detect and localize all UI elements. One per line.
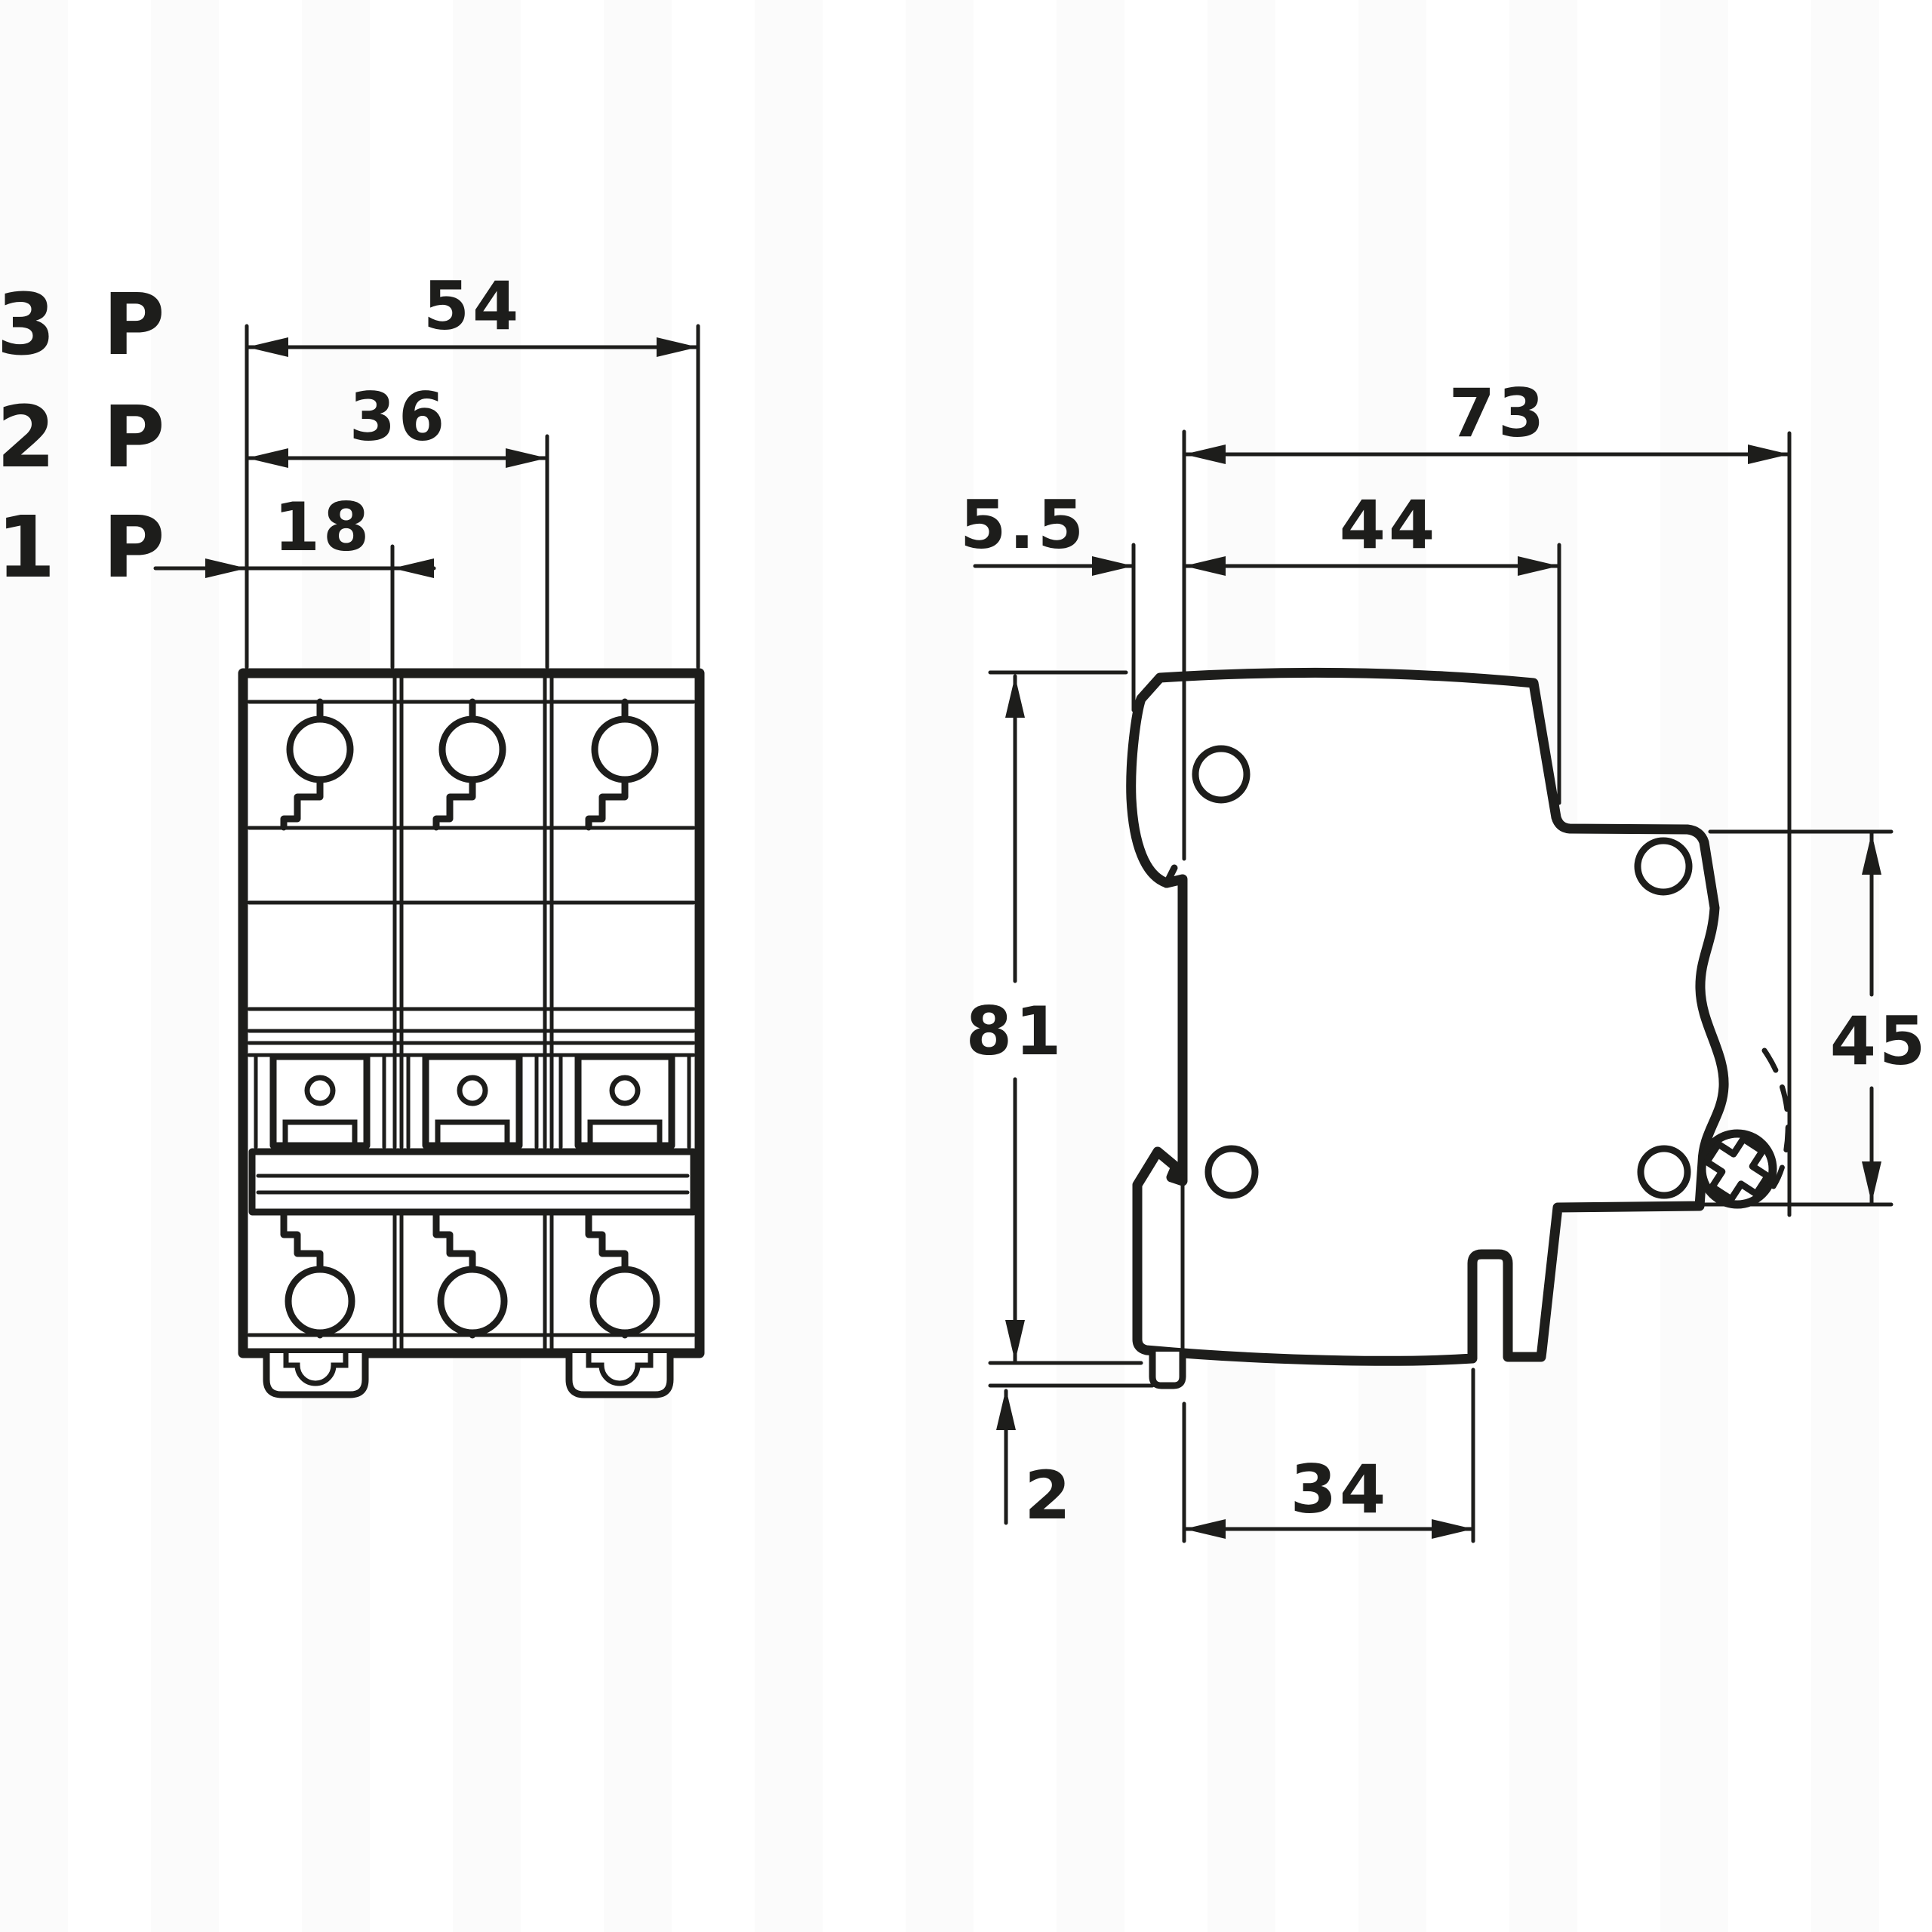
arrow-left [1184, 1519, 1226, 1539]
housing-rivet-top-front [1638, 841, 1689, 892]
label-3p: 3 P [0, 276, 174, 374]
dim-45: 45 [1830, 833, 1928, 1203]
arrow-right [1518, 556, 1559, 576]
technical-drawing: 54 36 18 3 P 2 P 1 P 73 [0, 0, 1932, 1932]
label-1p: 1 P [0, 499, 174, 597]
dim-34-label: 34 [1291, 1451, 1389, 1528]
dim-45-label: 45 [1830, 1002, 1928, 1080]
dim-44: 44 [1184, 486, 1559, 576]
dim-18-label: 18 [274, 488, 372, 566]
housing-rivet-bottom-front [1641, 1149, 1687, 1195]
arrow-down [1862, 1161, 1881, 1203]
pole-count-labels: 3 P 2 P 1 P [0, 276, 174, 597]
arrow-up-outside [996, 1389, 1016, 1430]
top-terminal-screw [290, 719, 350, 780]
bottom-terminal-screw [288, 1269, 352, 1333]
clip-outline [569, 1353, 670, 1395]
clip-foot [1152, 1352, 1183, 1386]
dim-2-label: 2 [1024, 1457, 1073, 1534]
bottom-terminal-screw [593, 1269, 657, 1333]
dim-2: 2 [996, 1389, 1074, 1534]
arrow-up [1862, 833, 1881, 875]
dim-36-label: 36 [349, 378, 448, 456]
dim-54-label: 54 [423, 267, 521, 345]
arrow-right-outside [392, 558, 434, 578]
arrow-left [247, 448, 288, 468]
bottom-terminal-screw [441, 1269, 504, 1333]
arrow-up [1005, 676, 1025, 718]
arrow-left [1184, 445, 1226, 464]
dim-73-label: 73 [1449, 374, 1547, 452]
clip-outline [266, 1353, 365, 1395]
dim-5-5-label: 5.5 [960, 486, 1087, 564]
dim-44-label: 44 [1340, 486, 1438, 564]
arrow-down [1005, 1320, 1025, 1361]
arrow-right-outside [1092, 556, 1134, 576]
arrow-left-outside [205, 558, 247, 578]
dim-5-5: 5.5 [960, 486, 1134, 576]
arrow-right [1748, 445, 1789, 464]
front-dimensions: 54 36 18 3 P 2 P 1 P [0, 267, 698, 667]
dim-36: 36 [247, 378, 547, 468]
arrow-left [1184, 556, 1226, 576]
drawing-canvas: 54 36 18 3 P 2 P 1 P 73 [0, 0, 1932, 1932]
dim-34: 34 [1184, 1451, 1473, 1539]
arrow-right [1432, 1519, 1473, 1539]
dim-73: 73 [1184, 374, 1789, 464]
housing-rivet-bottom-rear [1208, 1149, 1255, 1195]
dim-81: 81 [966, 676, 1064, 1361]
dim-81-label: 81 [966, 992, 1064, 1070]
front-view [243, 673, 700, 1395]
arrow-right [657, 337, 698, 357]
label-2p: 2 P [0, 389, 174, 487]
dim-54: 54 [247, 267, 698, 357]
top-terminal-screw [442, 719, 503, 780]
side-view [1131, 672, 1789, 1386]
din-clip-left [266, 1353, 365, 1395]
din-clip-right [569, 1353, 670, 1395]
trip-bar-band [252, 1152, 694, 1212]
top-terminal-screw [595, 719, 655, 780]
arrow-right [506, 448, 547, 468]
arrow-left [247, 337, 288, 357]
housing-rivet-top-rear [1195, 749, 1247, 800]
